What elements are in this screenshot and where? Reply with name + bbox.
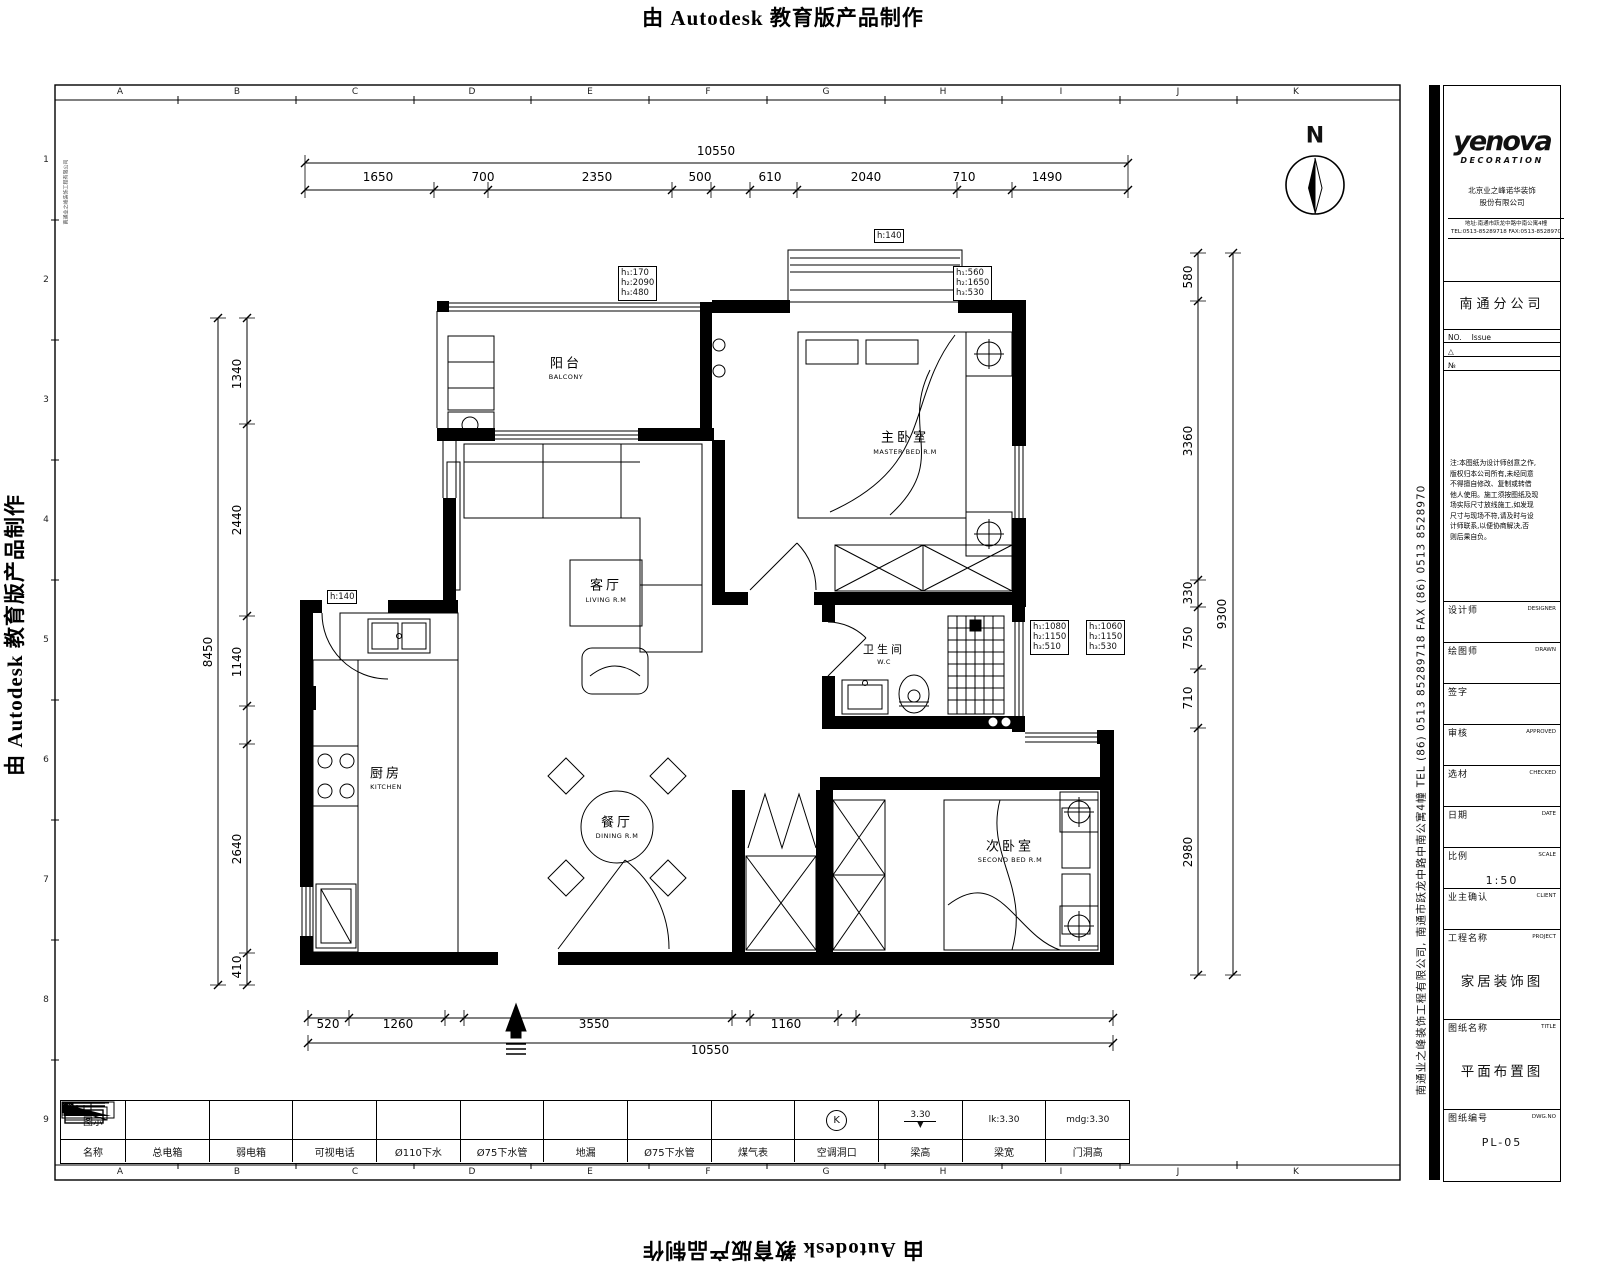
scale-value: 1:50 (1448, 862, 1556, 887)
dim-overall-left: 8450 (201, 637, 215, 668)
room-label-balcony: 阳台 (550, 353, 582, 372)
drain-75-icon (461, 1101, 545, 1139)
sheet-divider-bar (1429, 85, 1440, 1180)
door-height-value: mdg:3.30 (1066, 1115, 1109, 1125)
drawing-title: 平面布置图 (1448, 1034, 1556, 1080)
grid-col: B (234, 1167, 240, 1177)
grid-col: K (1293, 1167, 1299, 1177)
dim: 2640 (230, 834, 244, 865)
windows (302, 250, 1097, 952)
height-line: h₃:510 (1033, 642, 1066, 652)
north-label: N (1306, 124, 1324, 149)
field-designer: 设计师 DESIGNER (1444, 601, 1560, 642)
grid-row: 7 (43, 875, 49, 885)
dim: 1140 (230, 647, 244, 678)
height-note-bay: h:140 (874, 229, 904, 243)
grid-col: F (705, 87, 710, 97)
ac-opening-icon: K (795, 1101, 879, 1139)
field-label-en: TITLE (1541, 1024, 1556, 1030)
legend-name: Ø110下水 (377, 1140, 461, 1162)
height-line: h₁:560 (956, 268, 989, 278)
field-label-en: DESIGNER (1528, 606, 1557, 612)
company-name-line2: 股份有限公司 (1444, 198, 1560, 208)
note-line: 版权归本公司所有,未经同意 (1450, 469, 1554, 480)
dim: 520 (317, 1017, 340, 1031)
dim: 700 (472, 170, 495, 184)
note-line: 注:本图纸为设计师创意之作, (1450, 458, 1554, 469)
field-label: 图纸名称 (1448, 1021, 1488, 1034)
door-opening-height-symbol: mdg:3.30 (1046, 1101, 1129, 1139)
field-dwgno: 图纸编号 DWG.NO PL-05 (1444, 1109, 1560, 1180)
company-side-text: 南通业之峰装饰工程有限公司, 南通市跃龙中路中南公寓4幢 TEL (86) 05… (1414, 485, 1429, 1096)
grid-row: 3 (43, 395, 49, 405)
grid-col: K (1293, 87, 1299, 97)
field-label: 绘图师 (1448, 644, 1478, 657)
height-line: h₁:1060 (1089, 622, 1122, 632)
frame-corner-note: 南通业之峰装饰工程有限公司 (63, 159, 70, 224)
title-block: yenova DECORATION 北京业之峰诺华装饰 股份有限公司 地址:南通… (1443, 85, 1561, 1182)
watermark-top: 由 Autodesk 教育版产品制作 (642, 2, 924, 32)
grid-col: I (1060, 87, 1063, 97)
room-label-dining: 餐厅 (601, 812, 633, 831)
legend-name: 弱电箱 (210, 1140, 294, 1162)
company-name-line1: 北京业之峰诺华装饰 (1444, 186, 1560, 196)
grid-row: 9 (43, 1115, 49, 1125)
legend-row2-header: 名称 (61, 1140, 126, 1162)
dim: 2350 (582, 170, 613, 184)
room-sublabel-living: LIVING R.M (586, 596, 627, 604)
dim: 3360 (1181, 426, 1195, 457)
cad-floorplan-sheet: { "watermark": {"text": "由 Autodesk 教育版产… (0, 0, 1600, 1280)
sheet-frame (55, 85, 1400, 1180)
field-label: 日期 (1448, 808, 1468, 821)
watermark-bottom: 由 Autodesk 教育版产品制作 (642, 1236, 924, 1266)
height-line: h₂:1150 (1033, 632, 1066, 642)
beam-width-value: lk:3.30 (989, 1115, 1020, 1125)
entry-arrow (506, 1004, 526, 1054)
dim-overall-bottom: 10550 (691, 1043, 729, 1057)
room-label-living: 客厅 (590, 575, 622, 594)
low-voltage-box-icon (210, 1101, 294, 1139)
level-triangle: ▼ (917, 1121, 923, 1129)
field-label: 设计师 (1448, 603, 1478, 616)
height-line: h₂:1150 (1089, 632, 1122, 642)
legend-name: 地漏 (544, 1140, 628, 1162)
drain-110-icon (377, 1101, 461, 1139)
field-label-en: SCALE (1538, 852, 1556, 858)
field-label: 业主确认 (1448, 890, 1488, 903)
floorplan-drawing (0, 0, 1600, 1280)
legend-name: 煤气表 (712, 1140, 796, 1162)
grid-col: J (1177, 1167, 1180, 1177)
dim: 330 (1181, 582, 1195, 605)
field-project: 工程名称 PROJECT 家居装饰图 (1444, 929, 1560, 1019)
dim: 1650 (363, 170, 394, 184)
issue-no-header: NO. (1448, 333, 1462, 342)
height-line: h₁:170 (621, 268, 654, 278)
grid-col: D (469, 1167, 476, 1177)
dim: 500 (689, 170, 712, 184)
room-sublabel-bed2: SECOND BED R.M (978, 856, 1042, 864)
height-note-kitchen: h:140 (327, 590, 357, 604)
field-label-en: APPROVED (1526, 729, 1556, 735)
note-line: 不得擅自修改、复制或转借 (1450, 479, 1554, 490)
dim: 1340 (230, 359, 244, 390)
grid-col: C (352, 87, 358, 97)
height-line: h₃:530 (956, 288, 989, 298)
company-address-line1: 地址:南通市跃龙中路中南公寓4幢 (1448, 220, 1564, 228)
note-line: 计师联系,以便协商解决,否 (1450, 521, 1554, 532)
drawing-number: PL-05 (1448, 1124, 1556, 1149)
drain-75b-icon (628, 1101, 712, 1139)
field-label: 审核 (1448, 726, 1468, 739)
legend-table: 图示 K 3.30▼ lk:3.30 (60, 1100, 1130, 1164)
company-address-line2: TEL:0513-85289718 FAX:0513-8528970 (1448, 228, 1564, 236)
room-sublabel-dining: DINING R.M (596, 832, 639, 840)
grid-col: F (705, 1167, 710, 1177)
legend-name: 梁宽 (963, 1140, 1047, 1162)
field-label: 工程名称 (1448, 931, 1488, 944)
dim-overall-right: 9300 (1215, 599, 1229, 630)
field-label-en: CLIENT (1537, 893, 1556, 899)
walls (300, 300, 1114, 965)
beam-width-symbol: lk:3.30 (963, 1101, 1047, 1139)
field-approved: 审核 APPROVED (1444, 724, 1560, 765)
field-label: 图纸编号 (1448, 1111, 1488, 1124)
company-address: 地址:南通市跃龙中路中南公寓4幢 TEL:0513-85289718 FAX:0… (1448, 218, 1564, 239)
grid-col: A (117, 87, 123, 97)
field-client: 业主确认 CLIENT (1444, 888, 1560, 929)
field-date: 日期 DATE (1444, 806, 1560, 847)
field-label-en: PROJECT (1532, 934, 1556, 940)
grid-col: H (940, 87, 947, 97)
project-name: 家居装饰图 (1448, 944, 1556, 990)
dim: 710 (953, 170, 976, 184)
yenova-logo: yenova (1444, 128, 1560, 155)
field-material: 选材 CHECKED (1444, 765, 1560, 806)
dim: 410 (230, 956, 244, 979)
height-note-bay-window: h₁:560 h₂:1650 h₃:530 (953, 266, 992, 301)
room-sublabel-master: MASTER BED R.M (873, 448, 936, 456)
legend-name: 总电箱 (126, 1140, 210, 1162)
grid-row: 8 (43, 995, 49, 1005)
dim: 1160 (771, 1017, 802, 1031)
video-intercom-icon (293, 1101, 377, 1139)
branch-name: 南通分公司 (1444, 293, 1560, 312)
grid-col: G (823, 87, 830, 97)
grid-col: E (587, 1167, 593, 1177)
dim: 610 (759, 170, 782, 184)
legend-name: 门洞高 (1046, 1140, 1129, 1162)
watermark-left: 由 Autodesk 教育版产品制作 (0, 494, 29, 776)
field-title: 图纸名称 TITLE 平面布置图 (1444, 1019, 1560, 1109)
grid-row: 2 (43, 275, 49, 285)
legend-name: 梁高 (879, 1140, 963, 1162)
issue-row-2: № (1448, 361, 1456, 370)
height-note-balcony-window: h₁:170 h₂:2090 h₃:480 (618, 266, 657, 301)
room-label-bath: 卫生间 (863, 641, 905, 657)
dim: 2440 (230, 505, 244, 536)
field-label: 选材 (1448, 767, 1468, 780)
legend-name: Ø75下水管 (461, 1140, 545, 1162)
grid-row: 5 (43, 635, 49, 645)
dim: 710 (1181, 687, 1195, 710)
dim: 2040 (851, 170, 882, 184)
grid-col: C (352, 1167, 358, 1177)
dim: 1260 (383, 1017, 414, 1031)
field-signature: 签字 (1444, 683, 1560, 724)
room-sublabel-kitchen: KITCHEN (370, 783, 402, 791)
dim: 750 (1181, 627, 1195, 650)
height-note-bath-2: h₁:1060 h₂:1150 h₃:530 (1086, 620, 1125, 655)
field-label-en: DATE (1542, 811, 1556, 817)
grid-col: H (940, 1167, 947, 1177)
note-line: 他人使用。施工须按图纸及现 (1450, 490, 1554, 501)
height-line: h₁:1080 (1033, 622, 1066, 632)
legend-name: Ø75下水管 (628, 1140, 712, 1162)
field-scale: 比例 SCALE 1:50 (1444, 847, 1560, 888)
field-label-en: CHECKED (1529, 770, 1556, 776)
height-line: h₃:530 (1089, 642, 1122, 652)
dim-overall-top: 10550 (697, 144, 735, 158)
yenova-logo-sub: DECORATION (1444, 156, 1560, 165)
dim: 1490 (1032, 170, 1063, 184)
note-line: 场实际尺寸放线施工,如发现 (1450, 500, 1554, 511)
main-power-box-icon (126, 1101, 210, 1139)
dim: 3550 (970, 1017, 1001, 1031)
grid-col: B (234, 87, 240, 97)
issue-row-1: △ (1448, 347, 1454, 356)
ac-k-letter: K (826, 1110, 847, 1131)
room-label-master: 主卧室 (881, 427, 929, 446)
dimension-lines (210, 155, 1241, 1051)
dim: 3550 (579, 1017, 610, 1031)
legend-row1-header: 图示 (61, 1101, 126, 1139)
room-label-kitchen: 厨房 (370, 763, 402, 782)
note-line: 尺寸与现场不符,请及时与设 (1450, 511, 1554, 522)
height-note-bath-1: h₁:1080 h₂:1150 h₃:510 (1030, 620, 1069, 655)
height-line: h₂:1650 (956, 278, 989, 288)
room-sublabel-bath: W.C (877, 658, 891, 666)
grid-col: G (823, 1167, 830, 1177)
room-label-bed2: 次卧室 (986, 836, 1034, 855)
grid-row: 1 (43, 155, 49, 165)
issue-header: Issue (1472, 333, 1491, 342)
grid-col: D (469, 87, 476, 97)
height-line: h₂:2090 (621, 278, 654, 288)
grid-col: E (587, 87, 593, 97)
design-notes: 注:本图纸为设计师创意之作, 版权归本公司所有,未经同意 不得擅自修改、复制或转… (1444, 458, 1560, 542)
grid-row: 4 (43, 515, 49, 525)
field-label: 签字 (1448, 685, 1468, 698)
legend-name: 空调洞口 (795, 1140, 879, 1162)
height-line: h₃:480 (621, 288, 654, 298)
grid-col: J (1177, 87, 1180, 97)
gas-meter-icon (712, 1101, 796, 1139)
room-sublabel-balcony: BALCONY (549, 373, 584, 381)
grid-row: 6 (43, 755, 49, 765)
legend-name-row: 名称 总电箱 弱电箱 可视电话 Ø110下水 Ø75下水管 地漏 Ø75下水管 … (61, 1140, 1129, 1162)
field-label-en: DRAWN (1535, 647, 1556, 653)
field-label: 比例 (1448, 849, 1468, 862)
legend-symbol-row: 图示 K 3.30▼ lk:3.30 (61, 1101, 1129, 1140)
dim: 580 (1181, 266, 1195, 289)
legend-name: 可视电话 (293, 1140, 377, 1162)
beam-height-icon: 3.30▼ (879, 1101, 963, 1139)
field-drawn: 绘图师 DRAWN (1444, 642, 1560, 683)
north-arrow (1286, 156, 1344, 214)
floor-drain-icon (544, 1101, 628, 1139)
grid-col: A (117, 1167, 123, 1177)
grid-col: I (1060, 1167, 1063, 1177)
field-label-en: DWG.NO (1532, 1114, 1556, 1120)
note-line: 则后果自负。 (1450, 532, 1554, 543)
dim: 2980 (1181, 837, 1195, 868)
